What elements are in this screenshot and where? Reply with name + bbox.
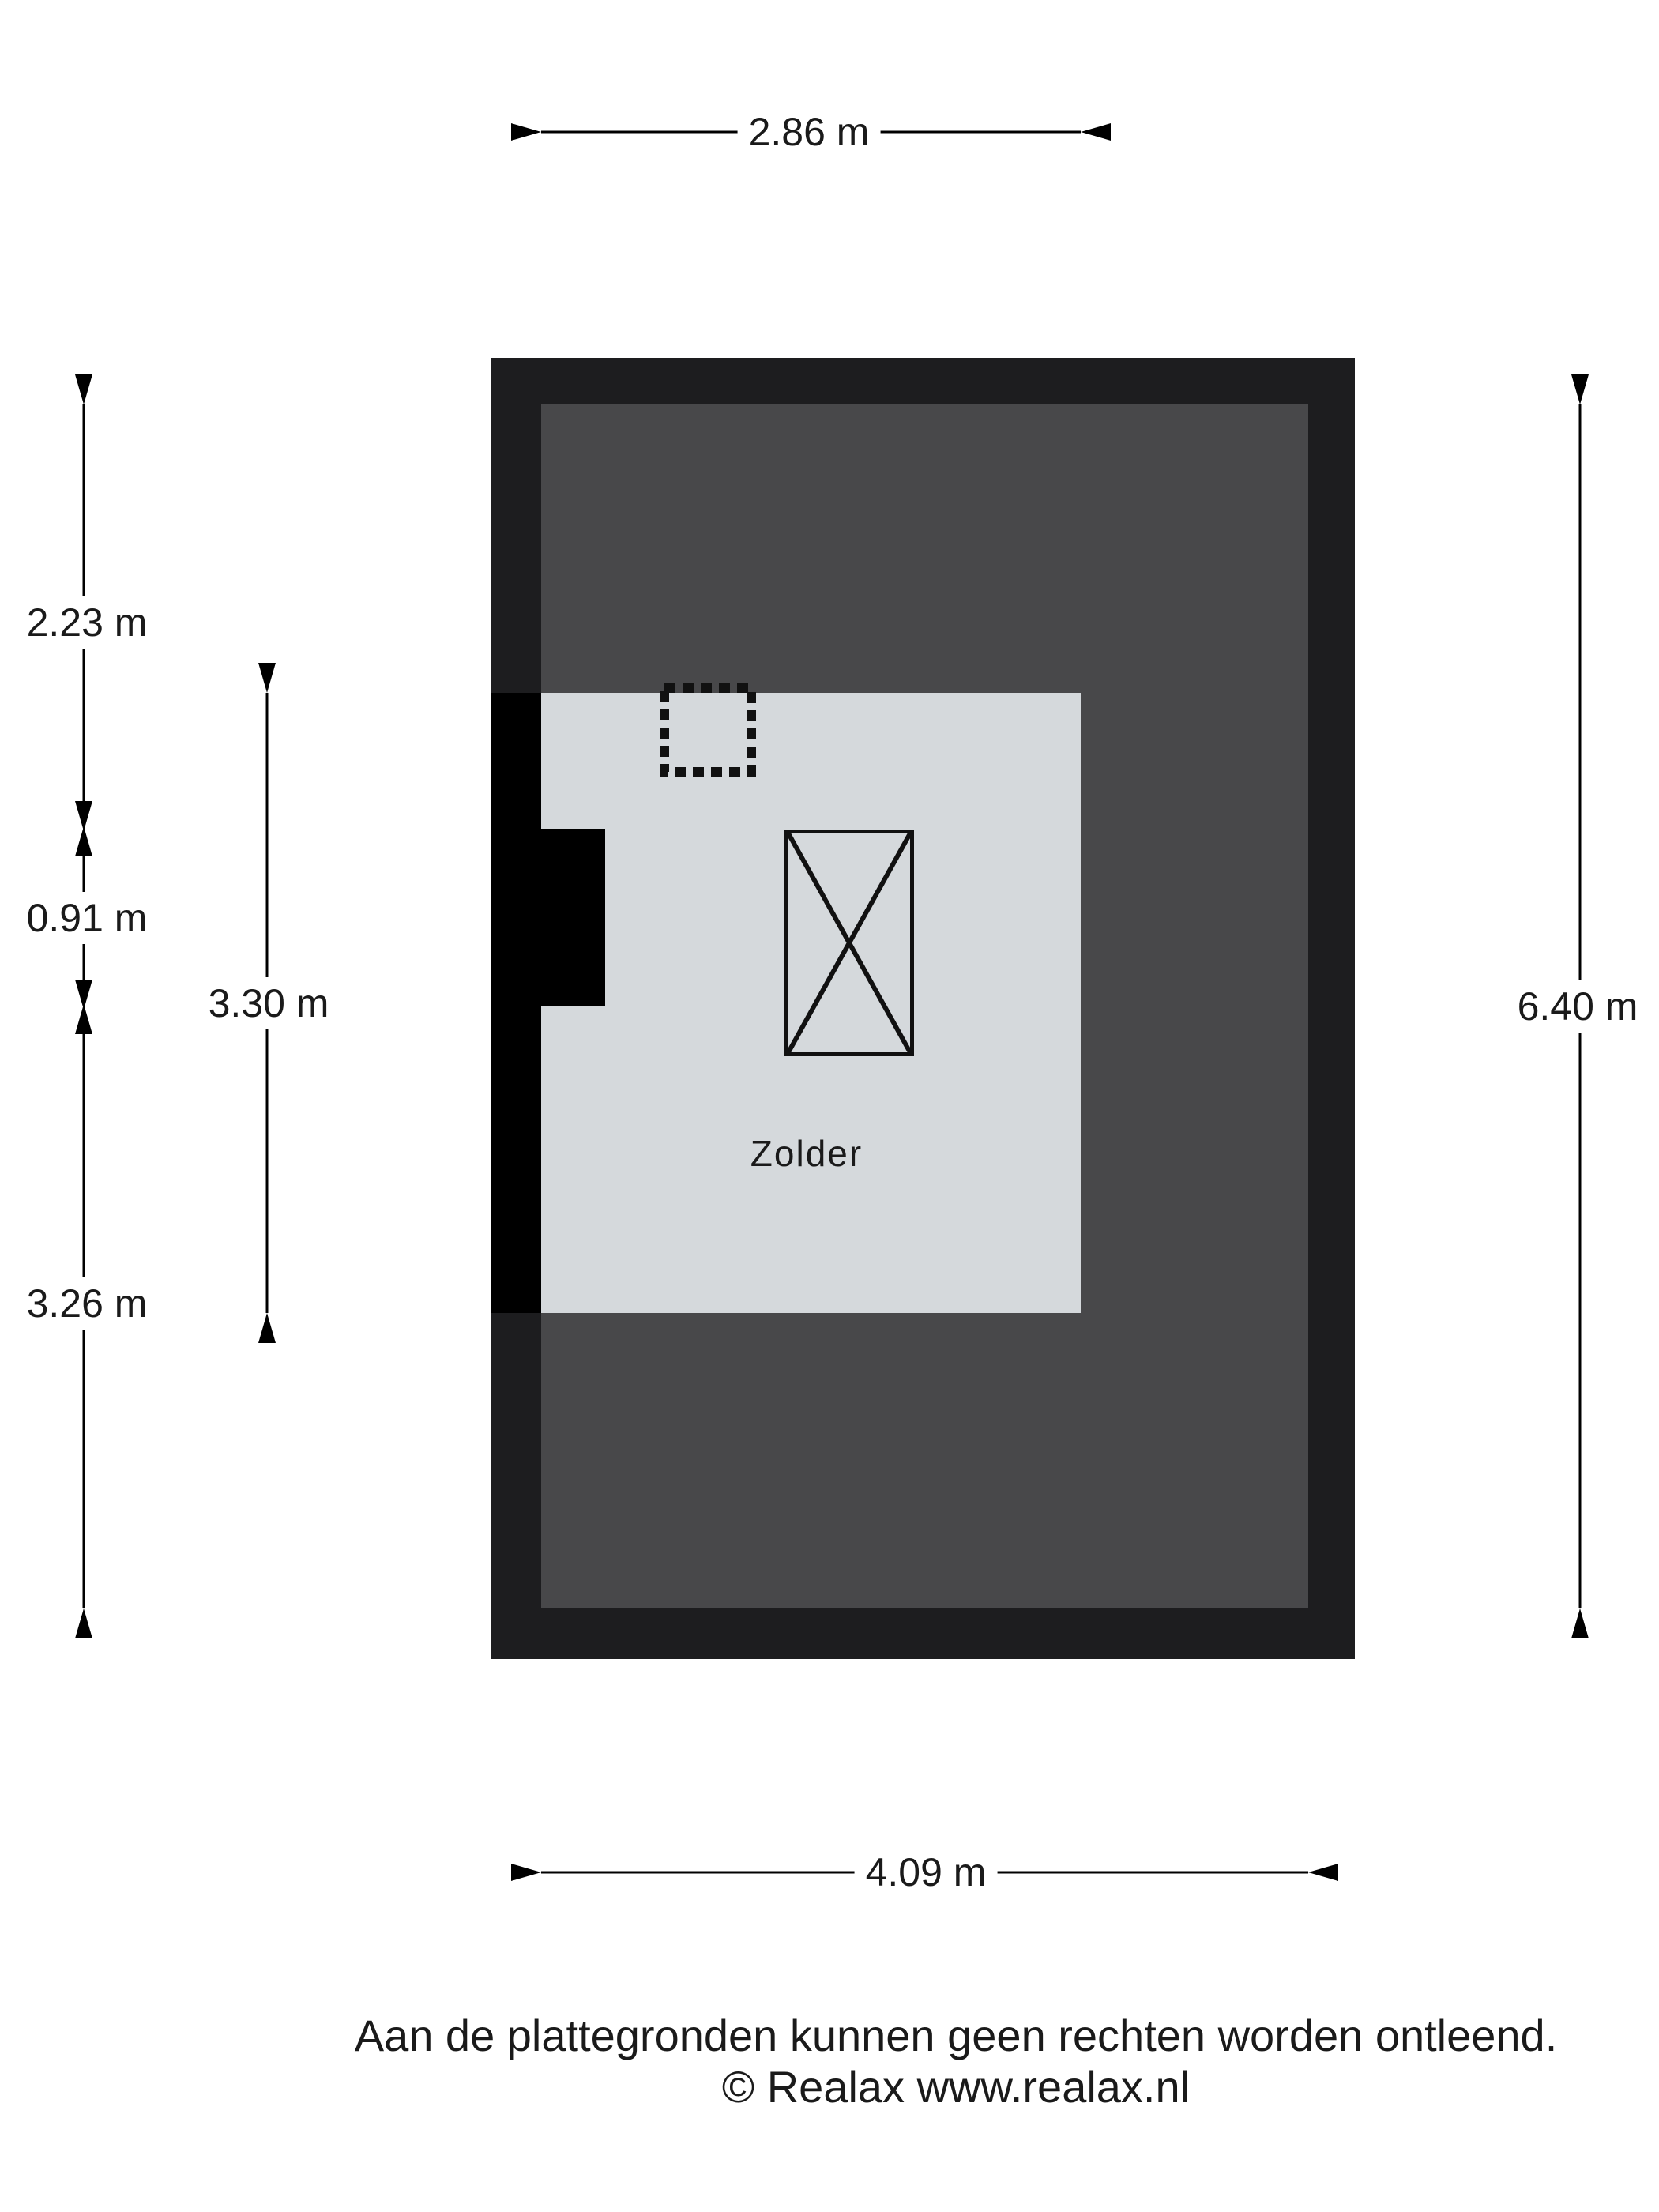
stairs-cross-icon [788,833,910,1052]
footer-disclaimer: Aan de plattegronden kunnen geen rechten… [284,2011,1627,2062]
dim-label-right-full: 6.40 m [1507,980,1650,1033]
footer: Aan de plattegronden kunnen geen rechten… [284,2011,1627,2113]
dashed-opening-icon [660,683,756,777]
floorplan-page: Zolder 2.86 m 2.23 m 0.91 m 3.26 m 3.30 … [0,0,1659,2212]
stairs-symbol [784,829,914,1056]
dim-label-left-lower: 3.26 m [16,1277,159,1330]
room-label: Zolder [750,1132,863,1175]
dim-label-left-upper: 2.23 m [16,596,159,649]
dashed-opening-outline [660,683,756,777]
dim-label-left-middle: 0.91 m [16,892,159,944]
dim-label-room-height: 3.30 m [197,977,340,1029]
footer-copyright: © Realax www.realax.nl [284,2062,1627,2113]
dim-label-room-width-top: 2.86 m [738,106,881,158]
left-wall-stub [491,829,605,1006]
dim-label-bottom-width: 4.09 m [855,1846,998,1898]
